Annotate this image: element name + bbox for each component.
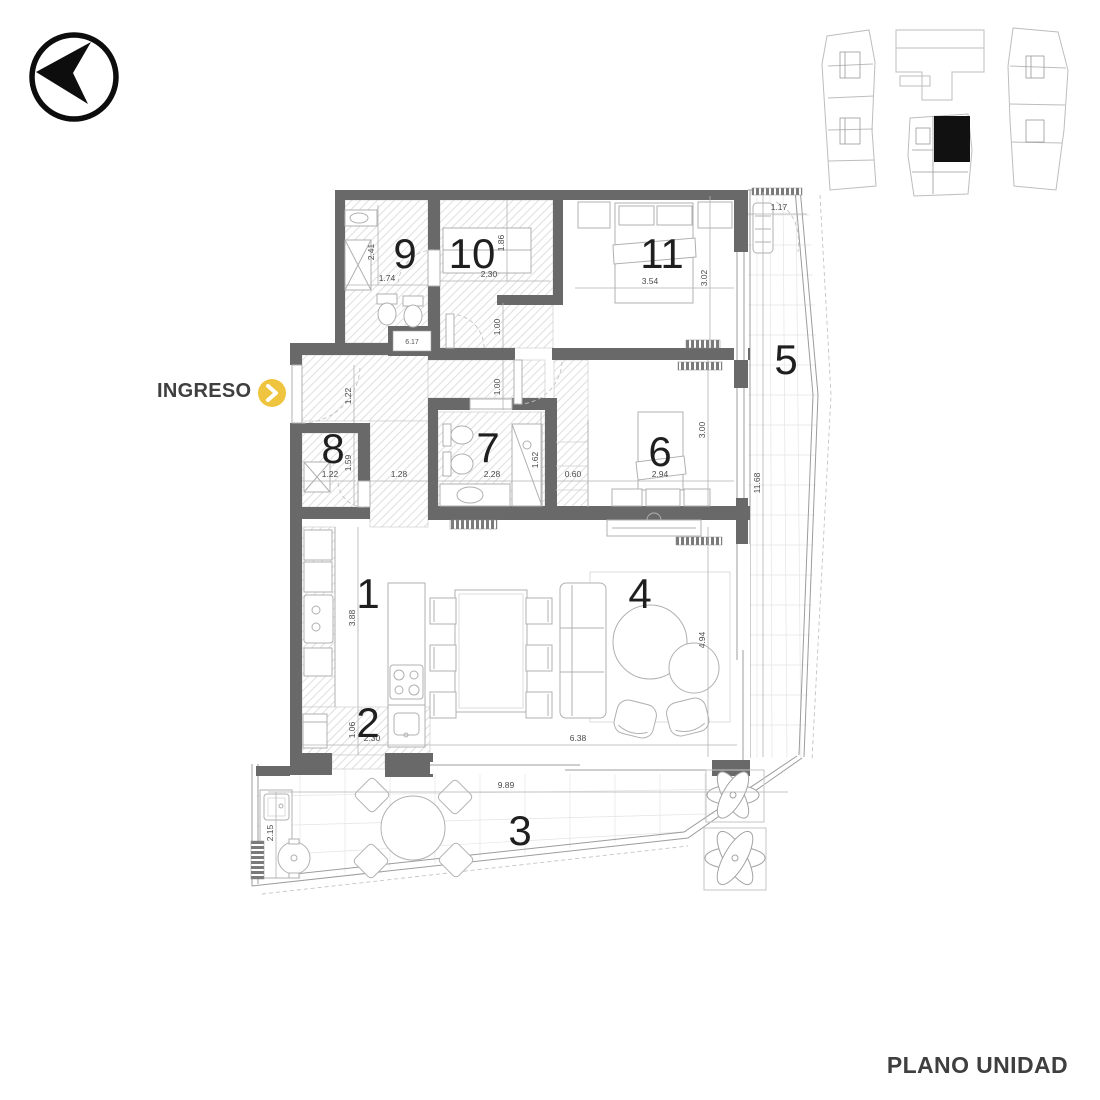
room-number-6: 6 bbox=[648, 428, 671, 475]
living-furniture bbox=[560, 513, 730, 740]
room-number-11: 11 bbox=[640, 230, 684, 277]
dining-set bbox=[430, 590, 552, 718]
room-number-10: 10 bbox=[449, 230, 496, 277]
coffee-table-small bbox=[669, 643, 719, 693]
floor-entry-hall bbox=[302, 355, 428, 421]
dim-balc-w: 1.17 bbox=[771, 202, 788, 212]
dim-liv-w: 6.38 bbox=[570, 733, 587, 743]
unit-highlight bbox=[934, 116, 970, 162]
room8-door-leaf bbox=[358, 481, 370, 507]
room-number-1: 1 bbox=[356, 570, 379, 617]
dim-ward: 0.60 bbox=[565, 469, 582, 479]
dim-r10-h: 1.86 bbox=[496, 234, 506, 251]
dim-pas: 1.28 bbox=[391, 469, 408, 479]
compass-icon bbox=[32, 35, 116, 119]
key-plan-right bbox=[1008, 28, 1068, 190]
vent-strip bbox=[332, 755, 385, 769]
floorplan-page: 6.17 bbox=[0, 0, 1100, 1100]
dim-r11-w: 3.54 bbox=[642, 276, 659, 286]
room-number-2: 2 bbox=[356, 699, 379, 746]
key-plan-left bbox=[822, 30, 876, 190]
room-number-4: 4 bbox=[628, 570, 651, 617]
room-number-9: 9 bbox=[393, 230, 416, 277]
living-slider bbox=[734, 544, 750, 760]
room-number-3: 3 bbox=[508, 807, 531, 854]
room-number-7: 7 bbox=[476, 424, 499, 471]
dim-ter-w: 9.89 bbox=[498, 780, 515, 790]
room-number-5: 5 bbox=[774, 336, 797, 383]
dim-liv-h: 4.94 bbox=[697, 631, 707, 648]
dim-balc-l: 11.68 bbox=[752, 472, 762, 493]
dim-r6-h: 3.00 bbox=[697, 421, 707, 438]
room9-door-leaf bbox=[428, 250, 440, 286]
planter-plants bbox=[704, 767, 766, 890]
page-title: PLANO UNIDAD bbox=[887, 1052, 1068, 1079]
shaft-label: 6.17 bbox=[405, 339, 419, 346]
sofa bbox=[560, 583, 606, 718]
ingreso-label: INGRESO bbox=[157, 380, 251, 403]
room10-door-leaf bbox=[446, 314, 454, 348]
grill bbox=[278, 842, 310, 874]
room-number-8: 8 bbox=[321, 425, 344, 472]
key-plans bbox=[822, 28, 1068, 196]
kitchen-island bbox=[388, 583, 425, 707]
ingreso-arrow-icon bbox=[258, 379, 286, 407]
dim-r7-h: 1.62 bbox=[530, 451, 540, 468]
terrace-table bbox=[381, 796, 445, 860]
armchair-left bbox=[612, 698, 659, 741]
railing-hatch-top bbox=[752, 188, 802, 195]
terrace-slider bbox=[430, 762, 712, 774]
floor-wardrobe-strip bbox=[554, 360, 588, 507]
plan-canvas: 6.17 bbox=[0, 0, 1100, 1100]
entry-door-leaf bbox=[292, 365, 302, 423]
dim-hall-2: 1.00 bbox=[492, 378, 502, 395]
dim-r11-h: 3.02 bbox=[699, 269, 709, 286]
dim-hall-1: 1.00 bbox=[492, 318, 502, 335]
room7-sliding-door bbox=[470, 399, 512, 409]
key-plan-unit-locator bbox=[908, 114, 972, 196]
dim-r9-h: 2.41 bbox=[366, 243, 376, 260]
bedroom-hall-door-leaf bbox=[514, 360, 522, 404]
boundary-dashed-bottom bbox=[262, 846, 688, 894]
key-plan-top bbox=[896, 30, 984, 100]
dim-entry: 1.22 bbox=[343, 387, 353, 404]
armchair-right bbox=[664, 696, 711, 739]
floor-hall-upper bbox=[428, 360, 545, 398]
dim-ter-l: 2.15 bbox=[265, 824, 275, 841]
